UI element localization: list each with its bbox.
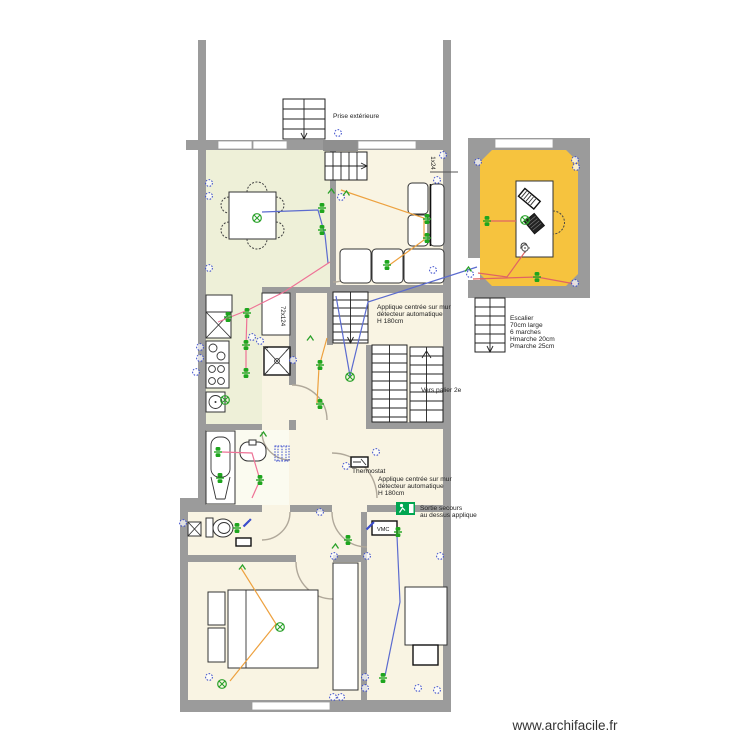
dining-table xyxy=(221,182,284,249)
label-window-dim: 1x24 xyxy=(429,156,436,170)
outlet-symbol xyxy=(434,177,441,184)
double-bed xyxy=(228,590,318,668)
wc-appliance xyxy=(188,522,201,536)
outlet-symbol xyxy=(317,509,324,516)
outlet-symbol xyxy=(572,157,579,164)
outlet-symbol xyxy=(434,687,441,694)
floor-plan-canvas: Prise extérieure Applique centrée sur mu… xyxy=(0,0,750,750)
label-closet-dim: 72x124 xyxy=(279,306,286,327)
outlet-symbol xyxy=(467,271,474,278)
outlet-symbol xyxy=(437,553,444,560)
single-bed xyxy=(405,587,447,645)
outlet-symbol xyxy=(338,694,345,701)
room-lower-left-extension xyxy=(188,512,206,700)
outlet-symbol xyxy=(206,193,213,200)
outlet-symbol xyxy=(290,357,297,364)
stair-exterior-top xyxy=(283,99,325,139)
outlet-symbol xyxy=(206,180,213,187)
outlet-symbol xyxy=(193,369,200,376)
kitchen-sink xyxy=(206,341,229,363)
kitchen-counter xyxy=(206,295,232,312)
nightstand xyxy=(208,628,225,662)
outlet-symbol xyxy=(335,130,342,137)
outlet-symbol xyxy=(206,674,213,681)
outlet-symbol xyxy=(197,344,204,351)
outlet-symbol xyxy=(362,674,369,681)
label-sortie-secours: Sortie secours au dessus applique xyxy=(420,505,477,519)
label-prise-exterieure: Prise extérieure xyxy=(333,113,380,120)
outlet-symbol xyxy=(415,685,422,692)
outlet-symbol xyxy=(330,694,337,701)
wardrobe-tall xyxy=(333,563,358,690)
label-thermostat: Thermostat xyxy=(352,468,386,475)
outlet-symbol xyxy=(206,265,213,272)
label-vmc: VMC xyxy=(377,527,389,533)
outlet-symbol xyxy=(180,520,187,527)
bathtub xyxy=(206,431,235,504)
stair-flight-right xyxy=(410,347,443,422)
outlet-symbol xyxy=(197,355,204,362)
stair-entry xyxy=(325,152,367,180)
outlet-symbol xyxy=(362,685,369,692)
outlet-symbol xyxy=(475,159,482,166)
entry-landing xyxy=(323,140,358,151)
outlet-symbol xyxy=(249,334,256,341)
nightstand xyxy=(413,645,438,665)
outlet-symbol xyxy=(331,553,338,560)
wc-radiator xyxy=(236,538,251,546)
bed-bottom-left xyxy=(208,590,318,668)
outlet-symbol xyxy=(573,164,580,171)
window-top-2 xyxy=(253,141,287,149)
watermark: www.archifacile.fr xyxy=(511,718,618,733)
window-top-3 xyxy=(358,141,416,149)
boiler-unit xyxy=(264,347,290,375)
toilet xyxy=(206,518,233,537)
stair-mid xyxy=(333,292,368,343)
wardrobe-top-bedroom xyxy=(340,249,444,283)
outlet-symbol xyxy=(257,338,264,345)
stair-annex xyxy=(475,298,505,352)
thermostat-box xyxy=(351,457,368,467)
outlet-symbol xyxy=(343,463,350,470)
window-bottom xyxy=(252,702,330,710)
outlet-symbol xyxy=(572,280,579,287)
outlet-symbol xyxy=(440,152,447,159)
stair-flight-left xyxy=(372,345,407,422)
emergency-exit-sign-icon xyxy=(396,502,415,515)
floor-plan-svg: Prise extérieure Applique centrée sur mu… xyxy=(0,0,750,750)
label-escalier-note: Escalier 70cm large 6 marches Hmarche 20… xyxy=(510,315,557,350)
window-top-1 xyxy=(218,141,252,149)
outlet-symbol xyxy=(373,449,380,456)
nightstand xyxy=(208,592,225,625)
outlet-symbol xyxy=(430,267,437,274)
outlet-symbol xyxy=(364,553,371,560)
annex-window xyxy=(495,139,553,148)
label-vers-palier: Vers palier 2e xyxy=(421,387,462,394)
